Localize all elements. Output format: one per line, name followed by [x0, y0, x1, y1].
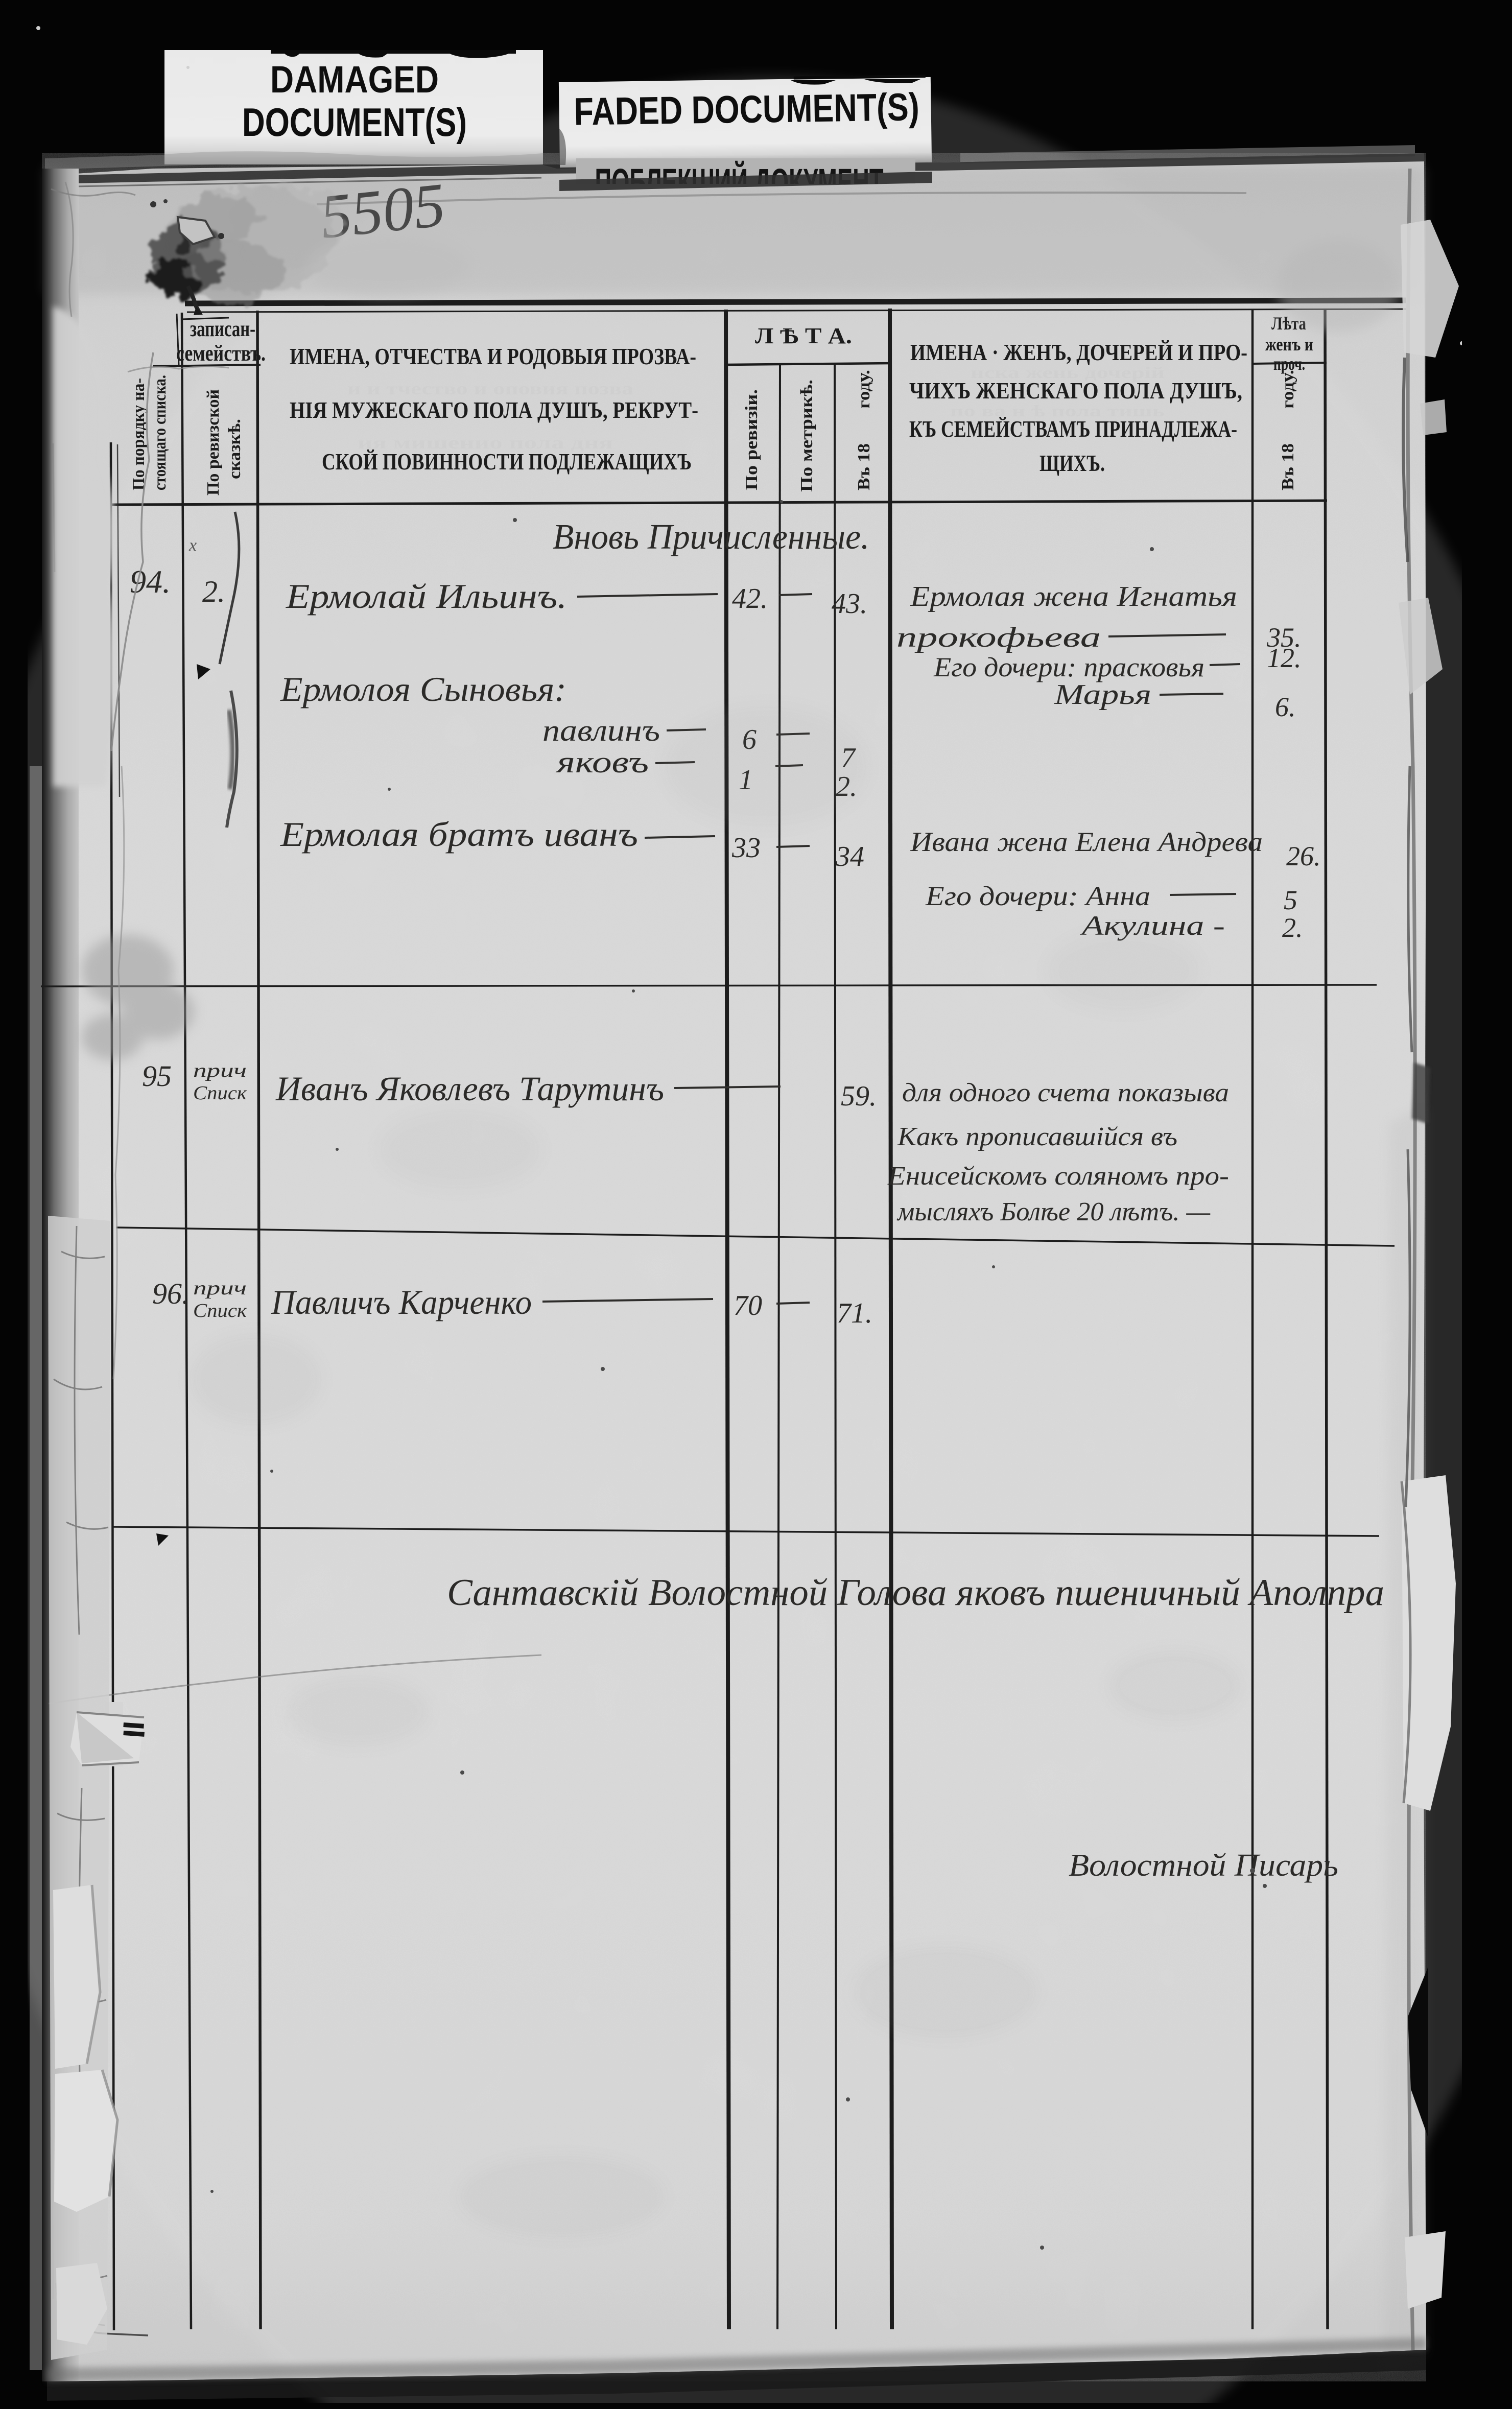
svg-text:DOCUMENT(S): DOCUMENT(S): [242, 100, 467, 145]
svg-text:записан-: записан-: [190, 316, 255, 341]
svg-text:Л Ѣ Т А.: Л Ѣ Т А.: [755, 323, 852, 348]
svg-text:Списк: Списк: [193, 1300, 247, 1321]
svg-text:и и тчество и оповия позва: и и тчество и оповия позва: [347, 380, 633, 398]
svg-text:Его дочери: Анна: Его дочери: Анна: [925, 881, 1150, 911]
svg-text:Его дочери: прасковья: Его дочери: прасковья: [933, 652, 1204, 682]
svg-text:стоящаго списка.: стоящаго списка.: [151, 375, 170, 490]
svg-text:По порядку на-: По порядку на-: [129, 378, 148, 490]
svg-text:94.: 94.: [130, 563, 171, 600]
svg-text:2.: 2.: [202, 575, 225, 608]
svg-text:НІЯ МУЖЕСКАГО ПОЛА ДУШЪ, РЕКРУ: НІЯ МУЖЕСКАГО ПОЛА ДУШЪ, РЕКРУТ-: [290, 397, 698, 423]
svg-text:34: 34: [835, 841, 864, 872]
svg-text:FADED DOCUMENT(S): FADED DOCUMENT(S): [574, 85, 919, 133]
svg-text:Волостной Писарь: Волостной Писарь: [1069, 1848, 1338, 1883]
svg-text:женъ и: женъ и: [1265, 334, 1313, 355]
svg-text:яковъ: яковъ: [555, 745, 649, 779]
svg-text:Марья: Марья: [1054, 679, 1151, 711]
svg-text:96.: 96.: [152, 1277, 190, 1310]
svg-text:по ва н ѣ пола тишь: по ва н ѣ пола тишь: [950, 401, 1165, 420]
svg-text:70: 70: [734, 1290, 762, 1321]
svg-text:По ревизіи.: По ревизіи.: [742, 389, 761, 490]
svg-text:Енисейскомъ соляномъ про-: Енисейскомъ соляномъ про-: [887, 1162, 1229, 1191]
svg-text:ИМЕНА, ОТЧЕСТВА И РОДОВЫЯ ПРОЗ: ИМЕНА, ОТЧЕСТВА И РОДОВЫЯ ПРОЗВА-: [290, 343, 696, 369]
svg-text:мысляхъ Болѣе 20 лѣтъ. —: мысляхъ Болѣе 20 лѣтъ. —: [896, 1197, 1211, 1226]
svg-text:По метрикѣ.: По метрикѣ.: [797, 380, 816, 492]
svg-text:прич: прич: [193, 1278, 247, 1299]
svg-text:Въ 18: Въ 18: [855, 443, 873, 490]
svg-text:12.: 12.: [1267, 643, 1302, 673]
svg-text:Вновь Причисленные.: Вновь Причисленные.: [553, 517, 869, 557]
svg-text:году.: году.: [1279, 370, 1297, 409]
svg-text:x: x: [188, 536, 197, 555]
svg-text:Павличъ Карченко: Павличъ Карченко: [271, 1283, 532, 1321]
svg-text:Иванъ Яковлевъ Тарутинъ: Иванъ Яковлевъ Тарутинъ: [275, 1069, 664, 1108]
svg-text:Ермолай Ильинъ.: Ермолай Ильинъ.: [286, 577, 567, 616]
svg-text:ЩИХЪ.: ЩИХЪ.: [1039, 450, 1105, 476]
svg-text:42.: 42.: [732, 583, 768, 615]
svg-text:прокофьева: прокофьева: [896, 622, 1101, 653]
svg-text:Ивана жена Елена Андрева: Ивана жена Елена Андрева: [910, 826, 1263, 857]
svg-text:павлинъ: павлинъ: [542, 714, 660, 747]
svg-text:DAMAGED: DAMAGED: [270, 58, 439, 101]
svg-text:нска жень дочерій: нска жень дочерій: [971, 363, 1165, 382]
svg-text:26.: 26.: [1286, 841, 1321, 871]
svg-text:33: 33: [731, 832, 761, 864]
svg-text:71.: 71.: [837, 1297, 872, 1329]
svg-text:Списк: Списк: [193, 1082, 247, 1104]
svg-text:6.: 6.: [1275, 692, 1296, 722]
svg-text:Ермолая братъ иванъ: Ермолая братъ иванъ: [280, 815, 638, 854]
svg-text:43.: 43.: [832, 588, 867, 620]
svg-text:ИМЕНА · ЖЕНЪ, ДОЧЕРЕЙ И ПРО-: ИМЕНА · ЖЕНЪ, ДОЧЕРЕЙ И ПРО-: [910, 339, 1247, 365]
svg-text:ия мишенио пола дня: ия мишенио пола дня: [358, 434, 613, 453]
svg-text:2.: 2.: [1282, 912, 1303, 943]
svg-text:Въ 18: Въ 18: [1279, 443, 1297, 490]
svg-text:По ревизской: По ревизской: [204, 389, 223, 495]
svg-text:5: 5: [1284, 885, 1297, 915]
svg-text:сказкѣ.: сказкѣ.: [225, 419, 244, 479]
svg-text:95: 95: [142, 1059, 172, 1093]
svg-text:Сантавскій Волостной Голова як: Сантавскій Волостной Голова яковъ пшенич…: [447, 1572, 1384, 1614]
svg-text:Ермолая жена Игнатья: Ермолая жена Игнатья: [910, 581, 1237, 612]
svg-text:Какъ прописавшійся въ: Какъ прописавшійся въ: [897, 1122, 1177, 1151]
svg-text:году.: году.: [855, 370, 873, 409]
svg-text:59.: 59.: [841, 1080, 877, 1112]
svg-text:для одного счета показыва: для одного счета показыва: [902, 1078, 1229, 1107]
svg-text:Ермолоя Сыновья:: Ермолоя Сыновья:: [280, 670, 566, 708]
svg-text:прич: прич: [193, 1060, 247, 1081]
svg-text:семействъ.: семействъ.: [176, 341, 266, 366]
